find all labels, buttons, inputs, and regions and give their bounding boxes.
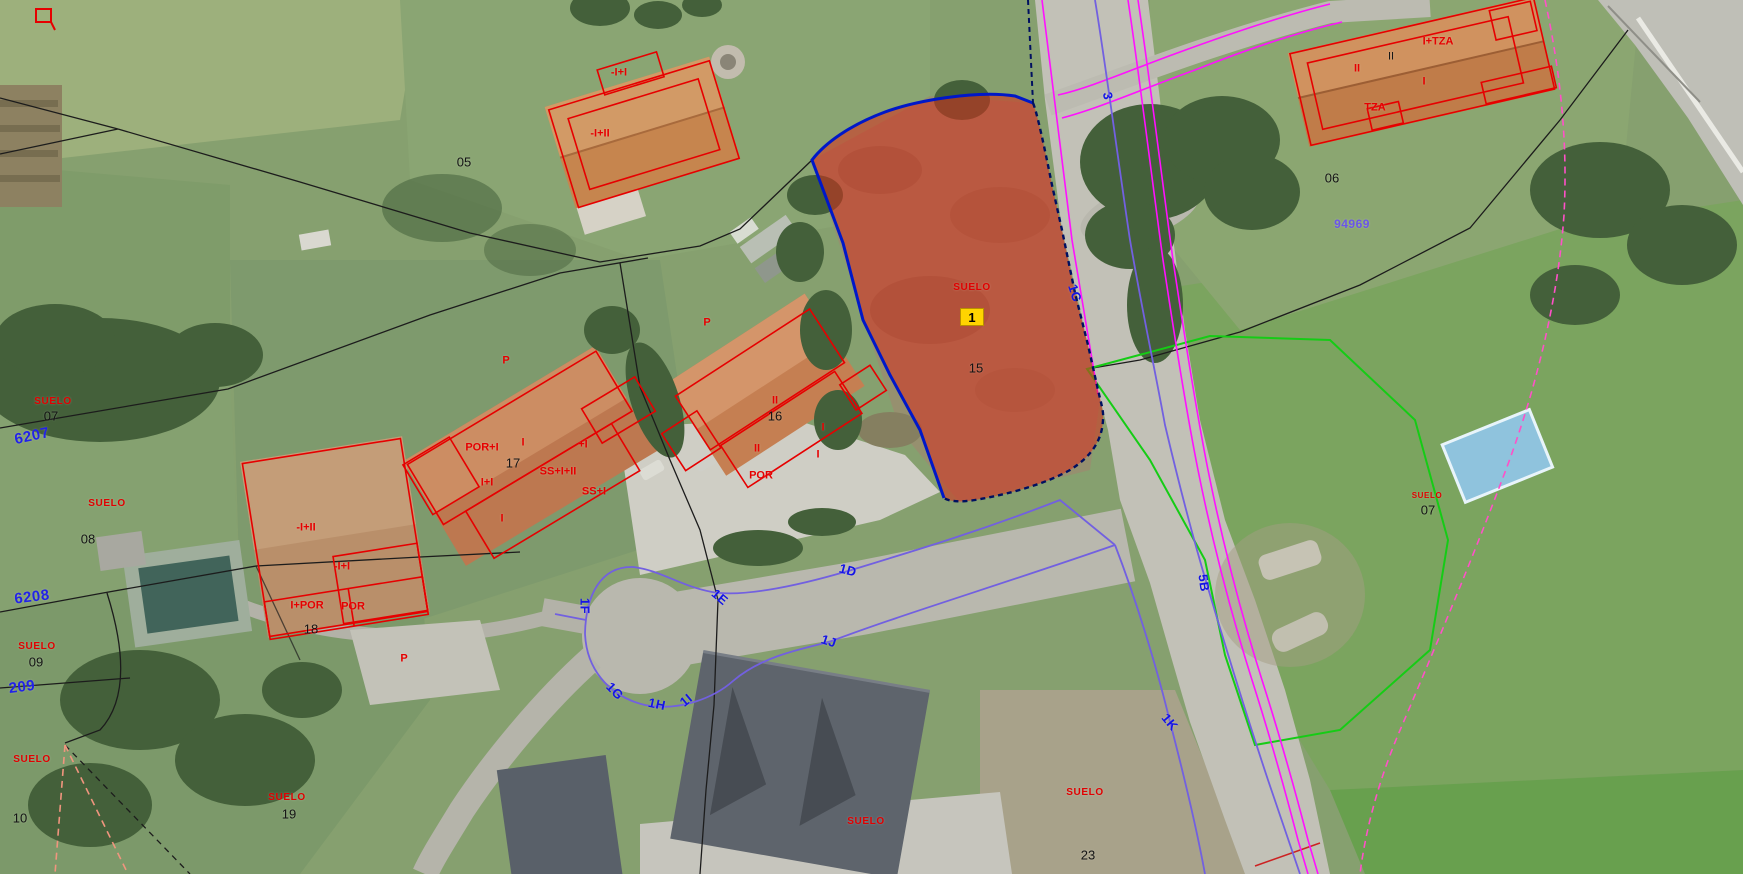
building-volume-label: POR xyxy=(341,602,365,613)
building-volume-label: I+POR xyxy=(290,601,323,612)
building-volume-label: TZA xyxy=(1364,103,1385,114)
floor-count-label: II xyxy=(1388,52,1394,63)
building-volume-label: SS+I xyxy=(582,487,606,498)
building-volume-label: I xyxy=(821,423,824,434)
building-volume-label: -I+I xyxy=(611,68,627,79)
building-volume-label: I+I xyxy=(481,478,494,489)
parcel-number-label: 18 xyxy=(304,623,318,636)
parcel-number-label: 08 xyxy=(81,533,95,546)
land-use-label: SUELO xyxy=(268,793,305,803)
street-code-label: 1G xyxy=(604,680,626,702)
building-volume-label: I xyxy=(500,514,503,525)
building-volume-label: I+TZA xyxy=(1423,37,1454,48)
parcel-number-label: 17 xyxy=(506,457,520,470)
selected-parcel-marker-badge[interactable]: 1 xyxy=(960,308,984,326)
building-volume-label: I xyxy=(1422,77,1425,88)
cadastral-ref-label: 6208 xyxy=(14,587,51,606)
building-volume-label: I xyxy=(521,438,524,449)
parcel-number-label: 19 xyxy=(282,808,296,821)
street-code-label: 1D xyxy=(838,561,858,578)
building-volume-label: I xyxy=(816,450,819,461)
building-volume-label: II xyxy=(754,444,760,455)
selected-parcel-land-use: SUELO xyxy=(953,283,990,293)
land-use-label: SUELO xyxy=(18,642,55,652)
parcel-number-label: 07 xyxy=(44,410,58,423)
parcel-number-label: 10 xyxy=(13,812,27,825)
building-volume-label: P xyxy=(703,318,710,329)
street-code-label: 1I xyxy=(677,691,694,709)
building-volume-label: +I xyxy=(578,440,587,451)
parcel-number-label: 23 xyxy=(1081,849,1095,862)
street-code-label: 5B xyxy=(1196,573,1211,592)
street-code-label: 3 xyxy=(1101,91,1115,101)
building-volume-label: POR xyxy=(749,471,773,482)
parcel-number-label: 05 xyxy=(457,156,471,169)
land-use-label: SUELO xyxy=(88,499,125,509)
parcel-number-label: 06 xyxy=(1325,172,1339,185)
building-volume-label: P xyxy=(400,654,407,665)
building-volume-label: -I+II xyxy=(296,523,315,534)
cadastral-ref-label: 6207 xyxy=(13,425,51,447)
land-use-label: SUELO xyxy=(1066,788,1103,798)
building-volume-label: -I+I xyxy=(334,562,350,573)
building-volume-label: II xyxy=(1354,64,1360,75)
street-code-label: 1K xyxy=(1159,711,1180,733)
building-volume-label: P xyxy=(502,356,509,367)
street-code-label: 1J xyxy=(820,632,839,649)
land-use-label: SUELO xyxy=(13,755,50,765)
building-volume-label: II xyxy=(772,396,778,407)
street-code-label: 1E xyxy=(709,587,730,608)
street-code-label: 1F xyxy=(579,598,592,614)
cadastral-ref-label: 209 xyxy=(8,678,36,696)
cadastral-ref-label: 94969 xyxy=(1334,218,1370,230)
parcel-number-label: 09 xyxy=(29,656,43,669)
building-volume-label: -I+II xyxy=(590,129,609,140)
parcel-number-label: 16 xyxy=(768,410,782,423)
label-layer: SUELO 1 15 31C5B1K1D1J1E1F1G1H1I62076208… xyxy=(0,0,1743,874)
street-code-label: 1H xyxy=(647,696,667,712)
building-volume-label: SS+I+II xyxy=(540,467,577,478)
building-volume-label: POR+I xyxy=(465,443,498,454)
parcel-number-label: 07 xyxy=(1421,504,1435,517)
land-use-label: SUELO xyxy=(847,817,884,827)
selected-parcel-number: 15 xyxy=(969,362,983,375)
land-use-label: SUELO xyxy=(34,397,71,407)
land-use-label: SUELO xyxy=(1412,492,1443,500)
map-canvas[interactable]: SUELO 1 15 31C5B1K1D1J1E1F1G1H1I62076208… xyxy=(0,0,1743,874)
street-code-label: 1C xyxy=(1066,283,1084,304)
